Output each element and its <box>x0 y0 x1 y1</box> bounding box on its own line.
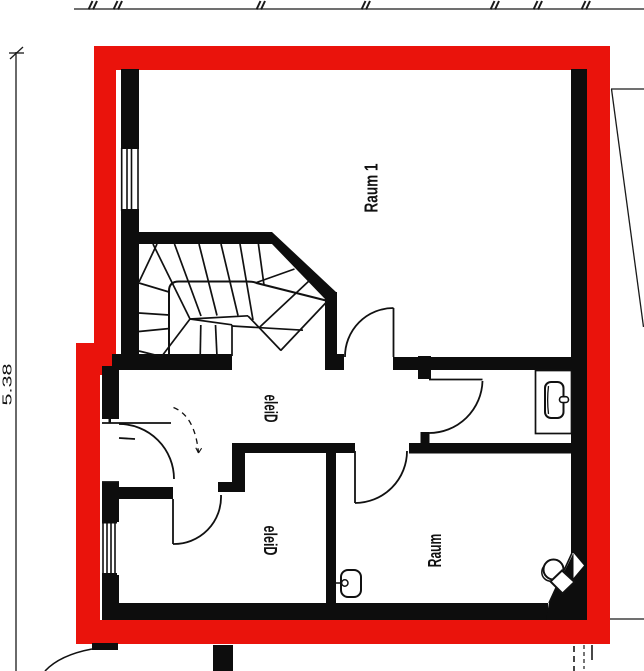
svg-text:eleiD: eleiD <box>261 395 281 423</box>
svg-text:Raum 1: Raum 1 <box>362 164 382 213</box>
svg-text:5.38: 5.38 <box>0 364 15 406</box>
svg-text:eleiD: eleiD <box>260 526 280 556</box>
svg-text:Raum: Raum <box>425 534 445 568</box>
